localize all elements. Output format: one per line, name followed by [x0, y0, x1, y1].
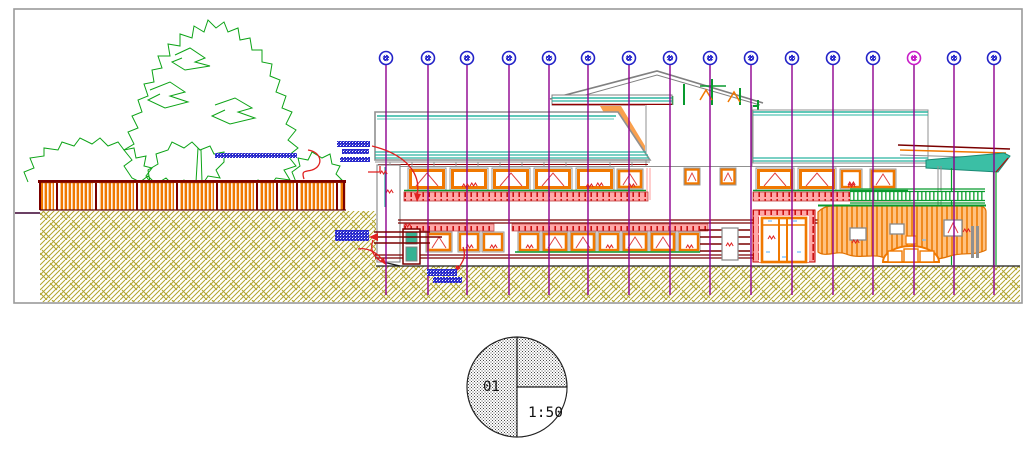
tree-trunk — [201, 150, 202, 182]
main-roof — [375, 112, 650, 167]
downspout — [971, 226, 974, 258]
clerestory-canopy — [552, 95, 672, 105]
grid-bubble-glyph — [951, 55, 957, 61]
grid-bubble-glyph — [830, 55, 836, 61]
upper-window-band — [400, 167, 928, 202]
grid-bubble-glyph — [585, 55, 591, 61]
slab-edge-band — [404, 192, 648, 201]
orange-garden-wall — [818, 206, 986, 263]
grid-bubble-glyph — [870, 55, 876, 61]
door-glass-panel — [406, 247, 417, 261]
tree-and-shrubs — [24, 20, 342, 190]
grid-bubble-glyph — [748, 55, 754, 61]
grid-bubble-glyph — [789, 55, 795, 61]
tree-foliage-scribble — [212, 98, 255, 124]
tree-trunk — [196, 148, 198, 182]
grid-bubble-glyph — [707, 55, 713, 61]
wall-window — [890, 224, 904, 234]
door-glass-panel — [406, 232, 417, 244]
sheet-number-label: 01 — [483, 379, 500, 395]
grid-bubble-glyph — [383, 55, 389, 61]
grid-bubble-glyph — [425, 55, 431, 61]
grid-bubble-glyph — [911, 55, 917, 61]
cad-elevation-viewport: 01 1:50 — [0, 0, 1031, 454]
green-trellis-band — [850, 189, 985, 203]
site-fence — [38, 180, 346, 210]
tree-foliage-scribble — [148, 82, 188, 108]
entry-column — [377, 165, 400, 262]
tower-wall — [645, 105, 753, 200]
side-window — [722, 228, 738, 260]
downspout — [976, 226, 979, 258]
tree-foliage-scribble — [172, 48, 210, 70]
grid-bubble-glyph — [991, 55, 997, 61]
entrance-doors — [753, 210, 815, 262]
wall-window — [850, 228, 866, 240]
scale-symbol: 01 1:50 — [467, 337, 567, 437]
building-elevation — [375, 71, 1010, 265]
elevation-drawing-canvas: 01 1:50 — [0, 0, 1031, 454]
grid-bubble-glyph — [626, 55, 632, 61]
scale-ratio-label: 1:50 — [528, 405, 563, 421]
grid-bubble-glyph — [506, 55, 512, 61]
grid-bubble-glyph — [464, 55, 470, 61]
grid-bubble-glyph — [546, 55, 552, 61]
shrub-outline — [148, 142, 224, 182]
grid-bubble-glyph — [667, 55, 673, 61]
tree-canopy-outline — [124, 20, 298, 190]
